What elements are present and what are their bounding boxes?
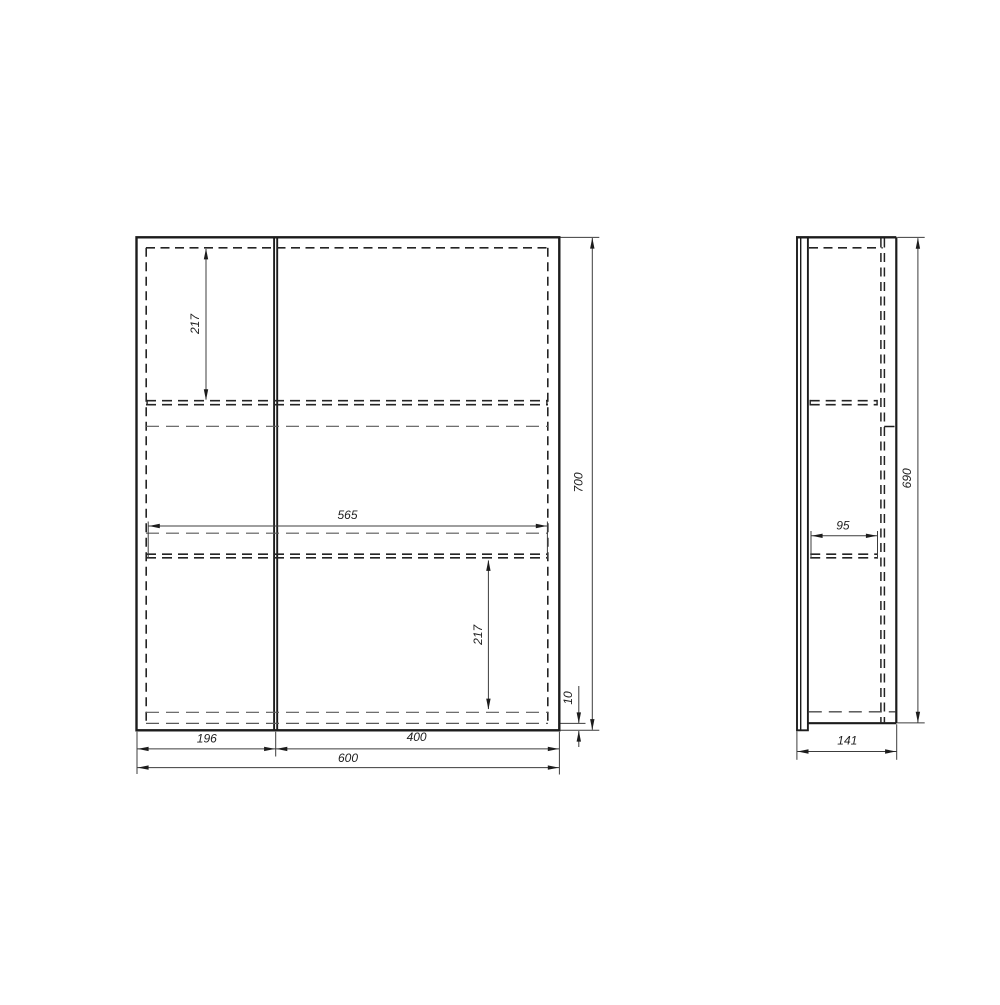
svg-text:217: 217 — [471, 623, 485, 645]
svg-text:10: 10 — [561, 691, 575, 705]
svg-text:95: 95 — [836, 519, 850, 533]
svg-text:400: 400 — [407, 730, 427, 744]
svg-text:600: 600 — [338, 751, 358, 765]
svg-text:700: 700 — [571, 472, 585, 492]
svg-text:690: 690 — [900, 468, 914, 488]
svg-text:196: 196 — [197, 731, 217, 745]
svg-text:141: 141 — [837, 734, 857, 748]
svg-text:217: 217 — [188, 313, 202, 335]
svg-text:565: 565 — [337, 508, 357, 522]
